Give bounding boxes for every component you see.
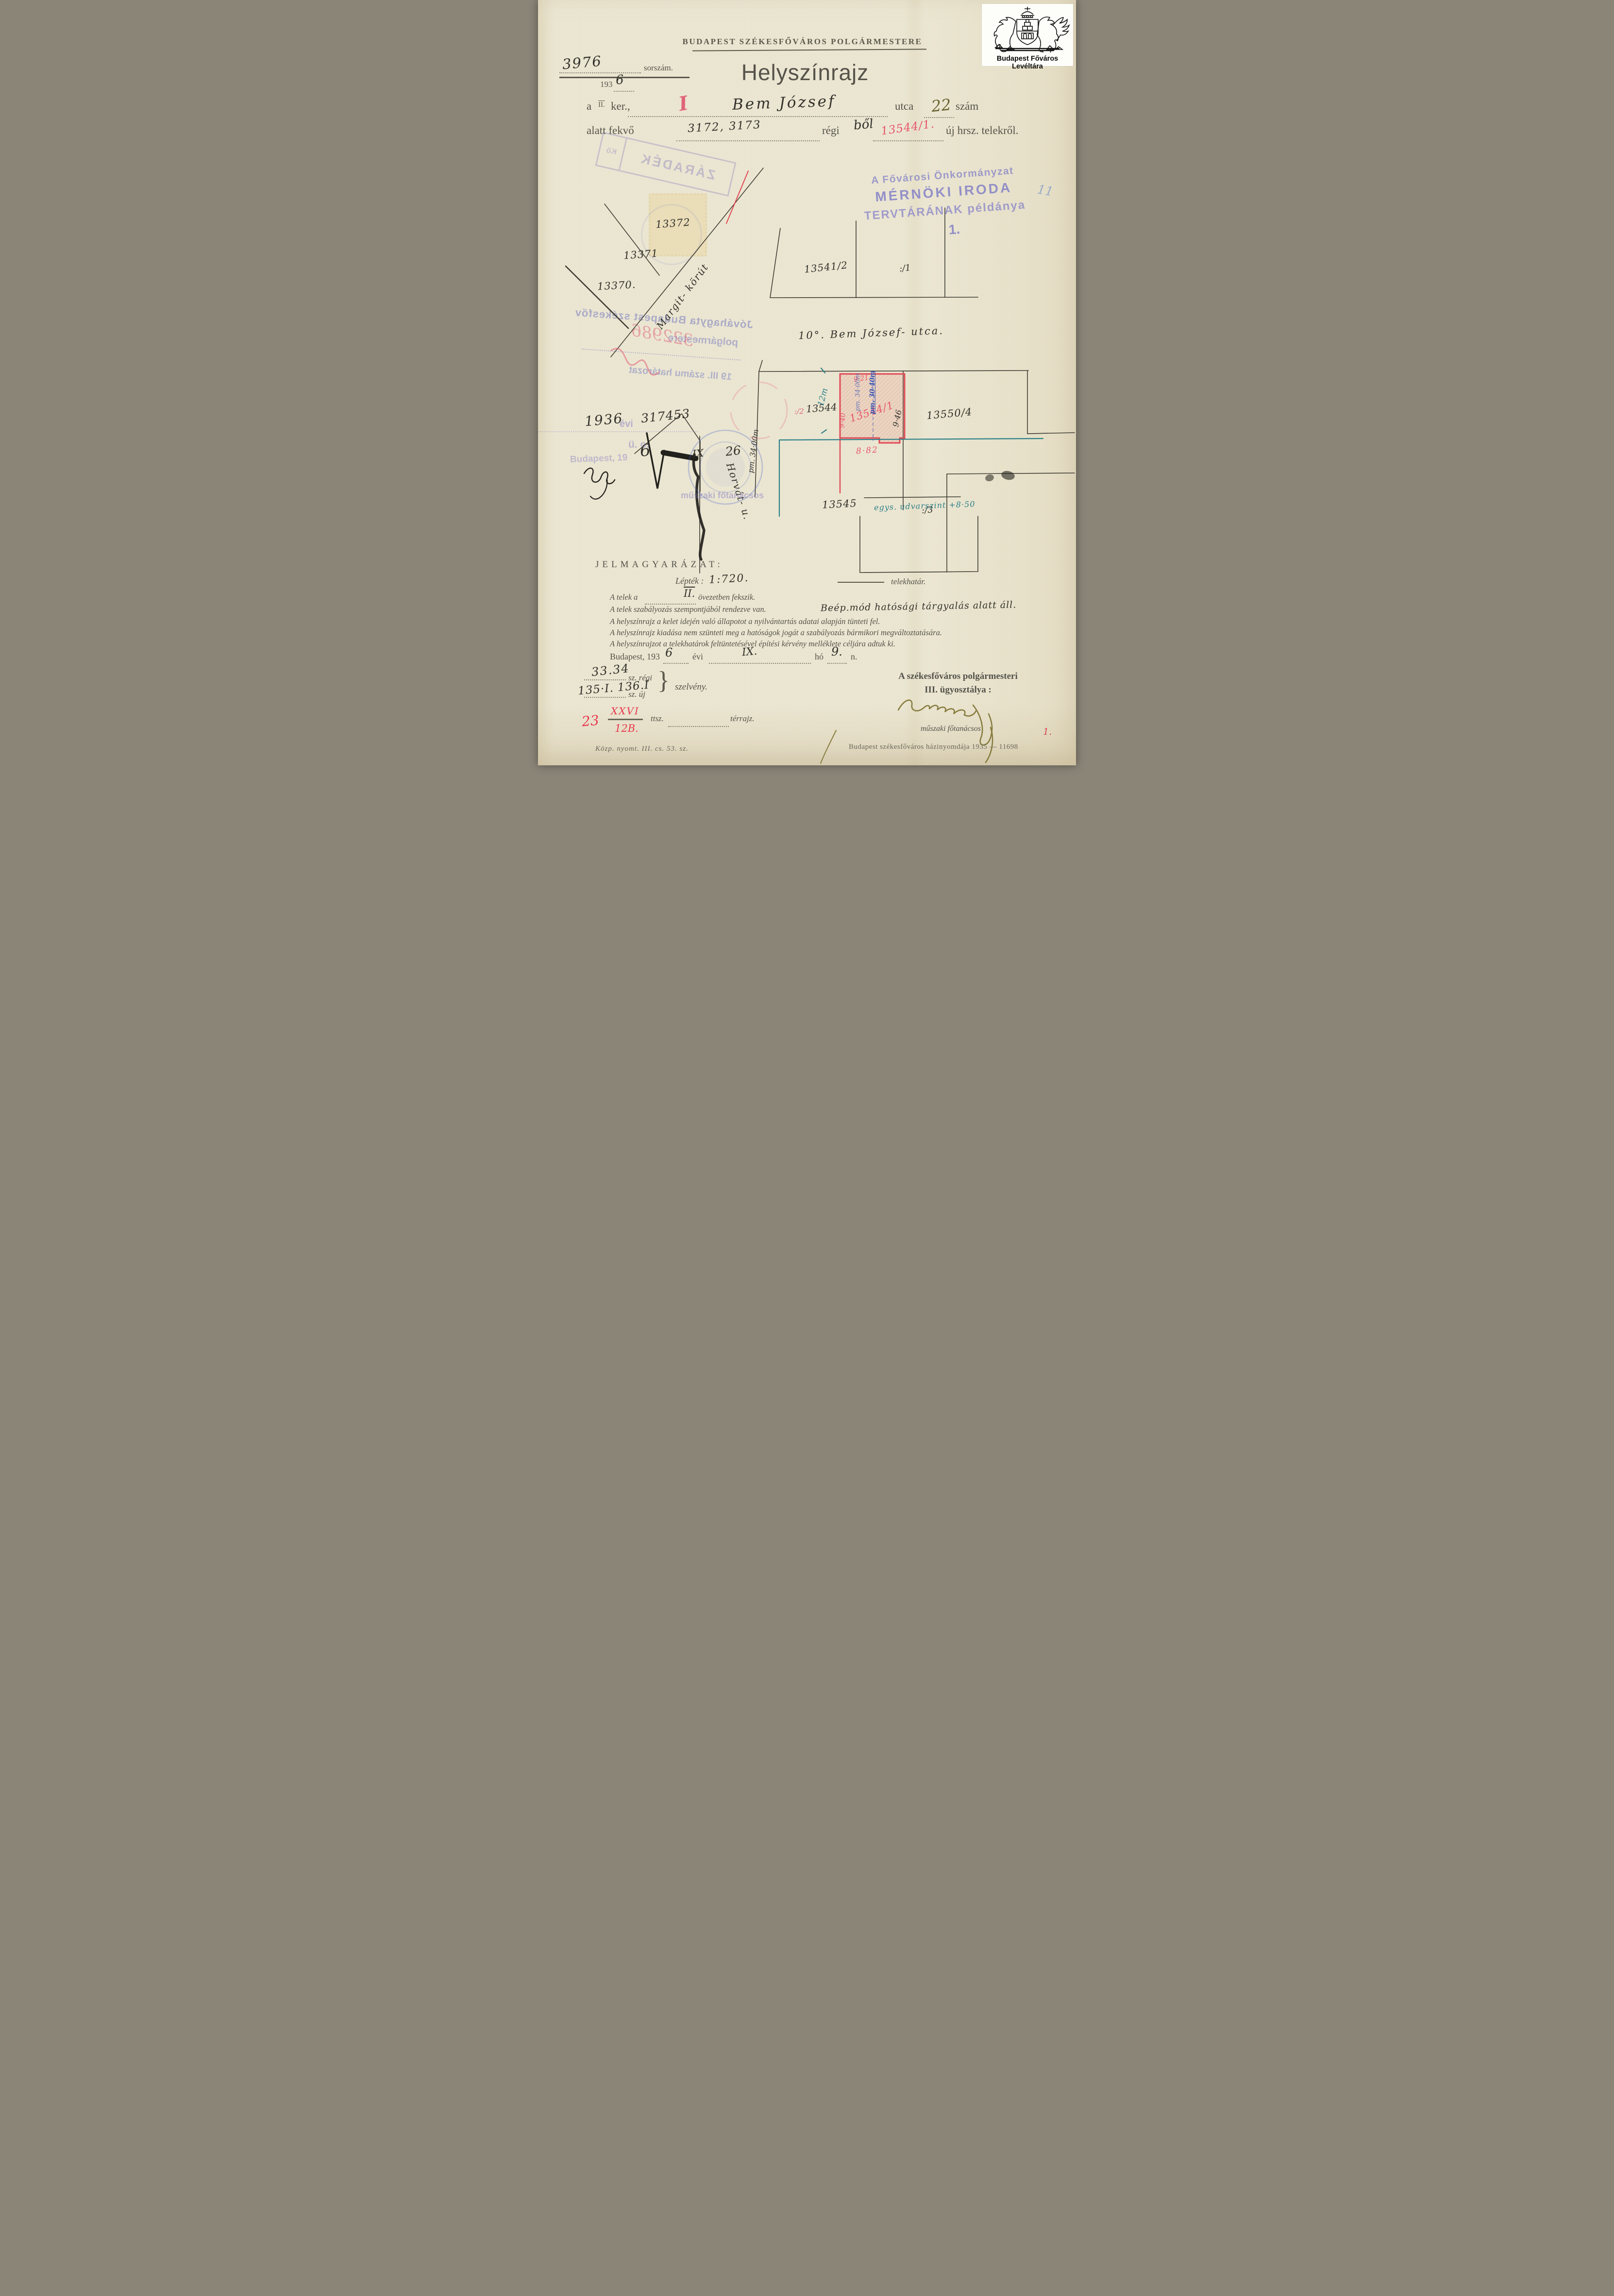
date-day: 9. [831,645,842,658]
parcel-suffix: új hrsz. telekről. [946,124,1018,137]
dept-line2: III. ügyosztálya : [878,685,1038,695]
archive-logo: Budapest Főváros Levéltára [982,4,1073,66]
office-title: BUDAPEST SZÉKESFŐVÁROS POLGÁRMESTERE [670,37,935,47]
section-new-label: sz. új [628,690,645,699]
date-evi: évi [692,652,703,662]
year-dotted-line [614,90,634,92]
legend-title: JELMAGYARÁZAT: [595,559,723,570]
site-plan-linework [538,0,1076,765]
dim-940: 9·40 [838,413,847,428]
telekhatar-label: telekhatár. [891,577,925,587]
section-brace: } [657,666,670,695]
blue-pencil-mark: 11 [1036,182,1055,199]
parcel-prefix: alatt fekvő [587,124,634,137]
imprint-left: Közp. nyomt. III. cs. 53. sz. [595,745,689,753]
legend-line1-b: övezetben fekszik. [698,592,755,602]
archive-logo-label: Budapest Főváros Levéltára [982,55,1073,70]
old-parcels-dotted [676,140,820,141]
dim-pm3040: pm. 30·40m [869,371,876,414]
legend-line1-a: A telek a [610,592,638,602]
terrajz-label: térrajz. [730,714,755,724]
section-old-dotted [584,679,626,680]
dept-line1: A székesfőváros polgármesteri [878,671,1038,682]
coat-of-arms-icon [982,4,1073,52]
red-xxvi: XXVI [611,705,639,717]
new-parcel-dotted [873,140,943,141]
legend-line2: A telek szabályozás szempontjából rendez… [610,605,766,614]
red-23: 23 [581,712,600,730]
plot-label-13372: 13372 [655,217,690,231]
budapest-stamp: Budapest, 19 [570,453,628,465]
regi-label: régi [822,124,840,137]
signature-title: műszaki főtanácsos [888,725,1014,733]
district-printed: II. [598,101,605,109]
date-prefix: Budapest, 193 [610,652,660,662]
plot-label-13371: 13371 [623,248,658,262]
serial-dotted-line [559,72,641,73]
note-1936: 1936 [584,410,624,430]
date-n: n. [851,652,857,662]
date-ix: IX [692,447,705,460]
muszaki-stamp: műszaki főtanácsos [681,490,764,501]
ttsz-fraction-line [608,719,643,720]
legend-zone: II. [684,588,695,599]
utca-label: utca [895,100,913,113]
plot-label-13370: 13370. [597,279,636,292]
serial-number: 3976 [562,52,603,72]
date-year: 6 [665,646,672,659]
document-page: ZÁRADÉK Kö Jóváhagyta Budapest székesfőv… [538,0,1076,765]
ttsz-label: ttsz. [651,714,664,724]
street-name: Bem József [732,92,836,113]
plot-label-13545: 13545 [822,497,857,511]
evi-stamp: évi [620,419,633,430]
dim-pm3400: pm. 34·00m [855,373,862,411]
address-prefix: a [587,100,591,113]
legend-line3: A helyszínrajz a kelet idején való állap… [610,617,880,626]
bol-handwritten: ből [853,117,874,133]
section-new-dotted [584,696,626,698]
szelveny-label: szelvény. [675,682,707,692]
date-day6: 6 [639,440,651,460]
ker-label: ker., [611,100,630,113]
serial-label: sorszám. [644,63,673,73]
date-month: IX. [741,645,757,659]
legend-line4: A helyszínrajz kiadása nem szünteti meg … [610,628,942,638]
scale-value: 1:720. [708,572,749,586]
imprint-right: Budapest székesfőváros házinyomdája 1935… [849,743,1018,751]
date-dotted-3 [827,662,847,664]
plot-label-sub1: :/1 [899,263,911,274]
date-dotted-1 [663,662,689,664]
year-handwritten: 6 [615,72,624,87]
date-26: 26 [725,443,742,458]
telekhatar-sample-line [838,582,884,583]
page-title: Helyszínrajz [698,59,912,85]
dim-882: 8·82 [856,445,878,456]
scale-label: Lépték : [675,576,704,586]
szam-label: szám [956,100,978,113]
serial-fraction-line [559,77,689,78]
red-12b: 12B. [615,723,639,734]
house-number-dotted [924,117,954,118]
date-dotted-2 [709,662,811,664]
red-copy-number: 1. [1043,726,1052,737]
ttsz-dotted [668,726,729,727]
year-printed: 193 [600,80,613,89]
address-dotted-line [628,116,888,117]
house-number: 22 [930,95,952,116]
evi-dotted-line [538,431,698,432]
plot-label-sub2: :/2 [794,407,804,416]
date-ho: hó [815,652,824,662]
